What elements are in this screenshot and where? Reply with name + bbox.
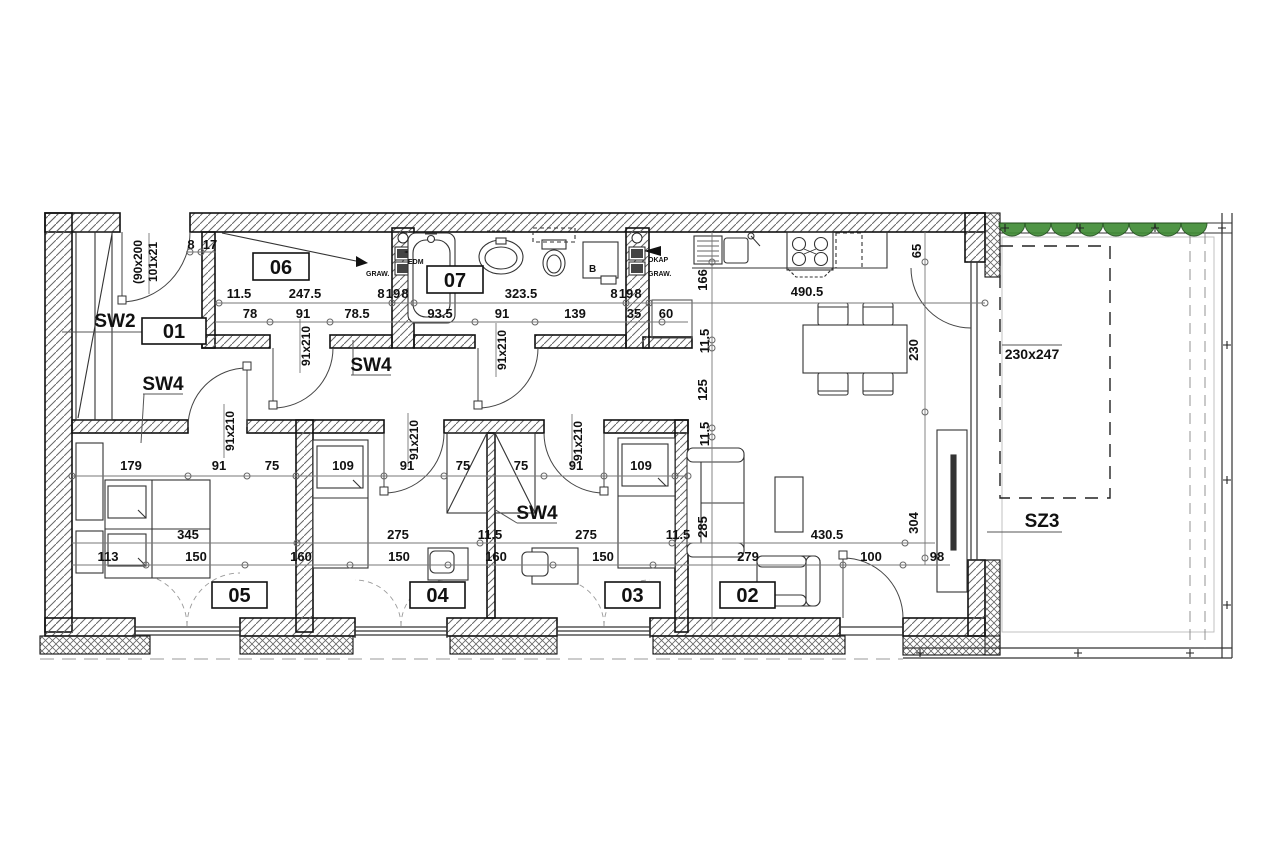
insul-corner — [903, 636, 1000, 655]
terrace-right-border — [1222, 213, 1232, 658]
armchair-back — [806, 556, 820, 606]
dimension-label: 17 — [203, 237, 217, 252]
wall-right-bottom — [968, 560, 985, 636]
dimension-label: 150 — [388, 549, 410, 564]
vent-arrow-icon — [356, 256, 368, 267]
plant-icon — [1025, 223, 1051, 236]
small-annotation: OKAP — [648, 257, 669, 264]
dimension-label: 490.5 — [791, 284, 824, 299]
dimension-label: 75 — [265, 458, 279, 473]
burner-icon — [793, 253, 806, 266]
window-arc — [355, 580, 401, 626]
terrace-dashed-zone — [1000, 246, 1110, 498]
dimension-label: 275 — [387, 527, 409, 542]
dimension-label: 91 — [495, 306, 509, 321]
dimension-label: 91 — [212, 458, 226, 473]
dimension-label: 98 — [930, 549, 944, 564]
survey-cross-icon — [1223, 341, 1231, 349]
dimension-label: 160 — [290, 549, 312, 564]
floor-plan-svg: 01060705040302 SW2SW4SW4SW4SZ391x21091x2… — [0, 0, 1280, 867]
survey-cross-icon — [1074, 649, 1082, 657]
desk-chair — [430, 551, 454, 573]
room-label-05: 05 — [228, 585, 250, 607]
burner-icon — [815, 238, 828, 251]
annotation-texts: SW2SW4SW4SW4SZ391x21091x21091x21091x2109… — [94, 237, 1059, 564]
kitchen-sink — [724, 238, 748, 263]
door-size-label: 91x210 — [571, 421, 585, 461]
door-hinge-icon — [839, 551, 847, 559]
dimension-label: 75 — [514, 458, 528, 473]
wall-type-label: SW4 — [350, 355, 392, 376]
dimension-label: 160 — [485, 549, 507, 564]
insul-bottom-2 — [240, 636, 353, 654]
glazing-right-wall — [968, 262, 980, 560]
dimension-label: 93.5 — [427, 306, 452, 321]
door-room05 — [188, 368, 247, 427]
plant-icon — [1077, 223, 1103, 236]
room-label-07: 07 — [444, 270, 466, 292]
insul-bottom-1 — [40, 636, 150, 654]
floor-plan-page: 01060705040302 SW2SW4SW4SW4SZ391x21091x2… — [0, 0, 1280, 867]
dimension-label: 75 — [456, 458, 470, 473]
terrace-drain-lines — [1190, 233, 1205, 648]
insul-bottom-4 — [653, 636, 845, 654]
room-label-02: 02 — [736, 585, 758, 607]
small-annotation: GRAW. — [648, 271, 671, 278]
wall-left — [45, 213, 72, 632]
dimension-label: 8 — [401, 286, 408, 301]
terrace-window-label: 230x247 — [1005, 346, 1060, 362]
dimension-label: 150 — [185, 549, 207, 564]
dresser-room05 — [76, 443, 103, 520]
chair — [818, 373, 848, 395]
door-hinge-icon — [600, 487, 608, 495]
wall-room03-02 — [675, 420, 688, 632]
dimension-label: 345 — [177, 527, 199, 542]
wall-room04-03 — [487, 433, 495, 618]
dimension-label: 100 — [860, 549, 882, 564]
wall-bath-corridor-a — [414, 335, 475, 348]
desk-chair — [522, 552, 548, 576]
dimension-label: 8 — [610, 286, 617, 301]
dimension-label: 279 — [737, 549, 759, 564]
wall-bottom-1 — [45, 618, 135, 636]
door-living — [843, 558, 903, 618]
dimension-label-vertical: 125 — [695, 379, 710, 401]
door-hinge-icon — [380, 487, 388, 495]
dimension-label: 11.5 — [478, 527, 503, 542]
door-hinge-icon — [118, 296, 126, 304]
window-room05 — [135, 624, 240, 638]
wall-type-label: SZ3 — [1025, 511, 1060, 532]
oven-dashed — [836, 233, 862, 268]
wall-bottom-3 — [447, 618, 557, 636]
plant-icon — [1051, 223, 1077, 236]
plant-icon — [1181, 223, 1207, 236]
small-annotation: GRAW. — [366, 271, 389, 278]
dimension-label: 113 — [98, 549, 119, 564]
wall-corridor-bed-1 — [72, 420, 188, 433]
drainboard — [694, 236, 722, 264]
door-hinge-icon — [269, 401, 277, 409]
door-size-label: 91x210 — [223, 411, 237, 451]
plant-icon — [1155, 223, 1181, 236]
toilet-tank — [542, 240, 566, 249]
wall-kitchen-stub — [643, 337, 692, 348]
wall-corridor-bed-3 — [444, 420, 544, 433]
tv-screen — [951, 455, 956, 550]
washbasin-inner — [485, 247, 517, 269]
dimension-label-vertical: 304 — [906, 511, 921, 533]
room-label-01: 01 — [163, 321, 185, 343]
plant-icon — [1103, 223, 1129, 236]
pillow — [108, 486, 146, 518]
chair — [863, 303, 893, 325]
dimension-label-vertical: 65 — [909, 244, 924, 258]
dimension-label: 109 — [630, 458, 652, 473]
door-hinge-icon — [474, 401, 482, 409]
room-label-03: 03 — [621, 585, 643, 607]
wall-type-label: SW4 — [142, 374, 184, 395]
wall-room05-04 — [296, 420, 313, 632]
window-room04 — [355, 624, 447, 638]
small-annotation: B — [589, 264, 596, 275]
vent-circle-icon — [632, 233, 642, 243]
dimension-label: 109 — [332, 458, 354, 473]
chair — [863, 373, 893, 395]
sofa-armrest — [687, 543, 744, 557]
dimension-label: 35 — [627, 306, 641, 321]
dimension-label: 78.5 — [344, 306, 369, 321]
dimension-label: 19 — [619, 286, 633, 301]
wall-top-main — [190, 213, 985, 232]
survey-cross-icon — [1223, 601, 1231, 609]
door-size-label: 91x210 — [407, 420, 421, 460]
plant-icon — [999, 223, 1025, 236]
room-label-04: 04 — [426, 585, 449, 607]
dimension-label: 91 — [296, 306, 310, 321]
terrace-floor-outline — [1002, 237, 1214, 632]
survey-cross-icon — [1218, 224, 1226, 232]
dimension-label-vertical: 230 — [906, 339, 921, 361]
chair — [818, 303, 848, 325]
wall-right-top — [965, 213, 985, 262]
plant-icon — [1129, 223, 1155, 236]
sofa-armrest — [687, 448, 744, 462]
survey-cross-icon — [1223, 476, 1231, 484]
dimension-label: 275 — [575, 527, 597, 542]
window-arc — [135, 574, 187, 626]
vent-circle-icon — [398, 233, 408, 243]
washing-machine-detail — [601, 276, 616, 284]
dining-table — [803, 325, 907, 373]
bedroom-furniture — [76, 438, 675, 584]
dimension-label: 91 — [569, 458, 583, 473]
dimension-label: 323.5 — [505, 286, 538, 301]
wall-room06-corridor-a — [202, 335, 270, 348]
dimension-label: 91 — [400, 458, 414, 473]
wall-corridor-bed-2 — [247, 420, 384, 433]
dimension-label: 179 — [120, 458, 142, 473]
basin-tap-icon — [496, 238, 506, 244]
small-annotation: EDM — [408, 259, 424, 266]
door-hinge-icon — [243, 362, 251, 370]
survey-cross-icon — [1186, 649, 1194, 657]
wall-type-label: SW2 — [94, 311, 135, 332]
wall-room06-corridor-b — [330, 335, 392, 348]
wall-type-label: SW4 — [516, 503, 558, 524]
coffee-table — [775, 477, 803, 532]
entrance-door-label: (90x200 — [131, 240, 145, 284]
door-size-label: 91x210 — [495, 330, 509, 370]
door-balcony — [911, 268, 971, 328]
dining-set — [803, 303, 907, 395]
dimension-label: 11.5 — [666, 527, 691, 542]
insul-right-top — [985, 213, 1000, 277]
door-sill-living — [840, 627, 903, 635]
door-size-label: 91x210 — [299, 326, 313, 366]
stove — [787, 232, 833, 270]
dimension-label: 19 — [386, 286, 400, 301]
label-leaders — [62, 332, 1062, 532]
entrance-door-label: 101x21 — [146, 242, 160, 282]
window-arc — [557, 579, 604, 626]
window-room03 — [557, 624, 650, 638]
dimension-label: 8 — [377, 286, 384, 301]
burner-icon — [793, 238, 806, 251]
burner-icon — [815, 253, 828, 266]
dimension-label: 247.5 — [289, 286, 322, 301]
toilet-bowl-inner — [547, 255, 561, 273]
dimension-label: 78 — [243, 306, 257, 321]
walls-insulation — [40, 213, 1000, 655]
insul-bottom-3 — [450, 636, 557, 654]
dimension-label: 139 — [564, 306, 586, 321]
dimension-label-vertical: 166 — [695, 269, 710, 291]
dimension-label-vertical: 285 — [695, 516, 710, 538]
dimension-label: 150 — [592, 549, 614, 564]
dimension-label: 11.5 — [227, 286, 252, 301]
room-label-06: 06 — [270, 257, 292, 279]
kitchen-counter — [692, 232, 887, 268]
dimension-label: 8 — [634, 286, 641, 301]
wall-bath-corridor-b — [535, 335, 626, 348]
hood-dashed — [787, 268, 833, 277]
dimension-label: 430.5 — [811, 527, 844, 542]
bathtub-faucet-icon — [428, 236, 435, 243]
